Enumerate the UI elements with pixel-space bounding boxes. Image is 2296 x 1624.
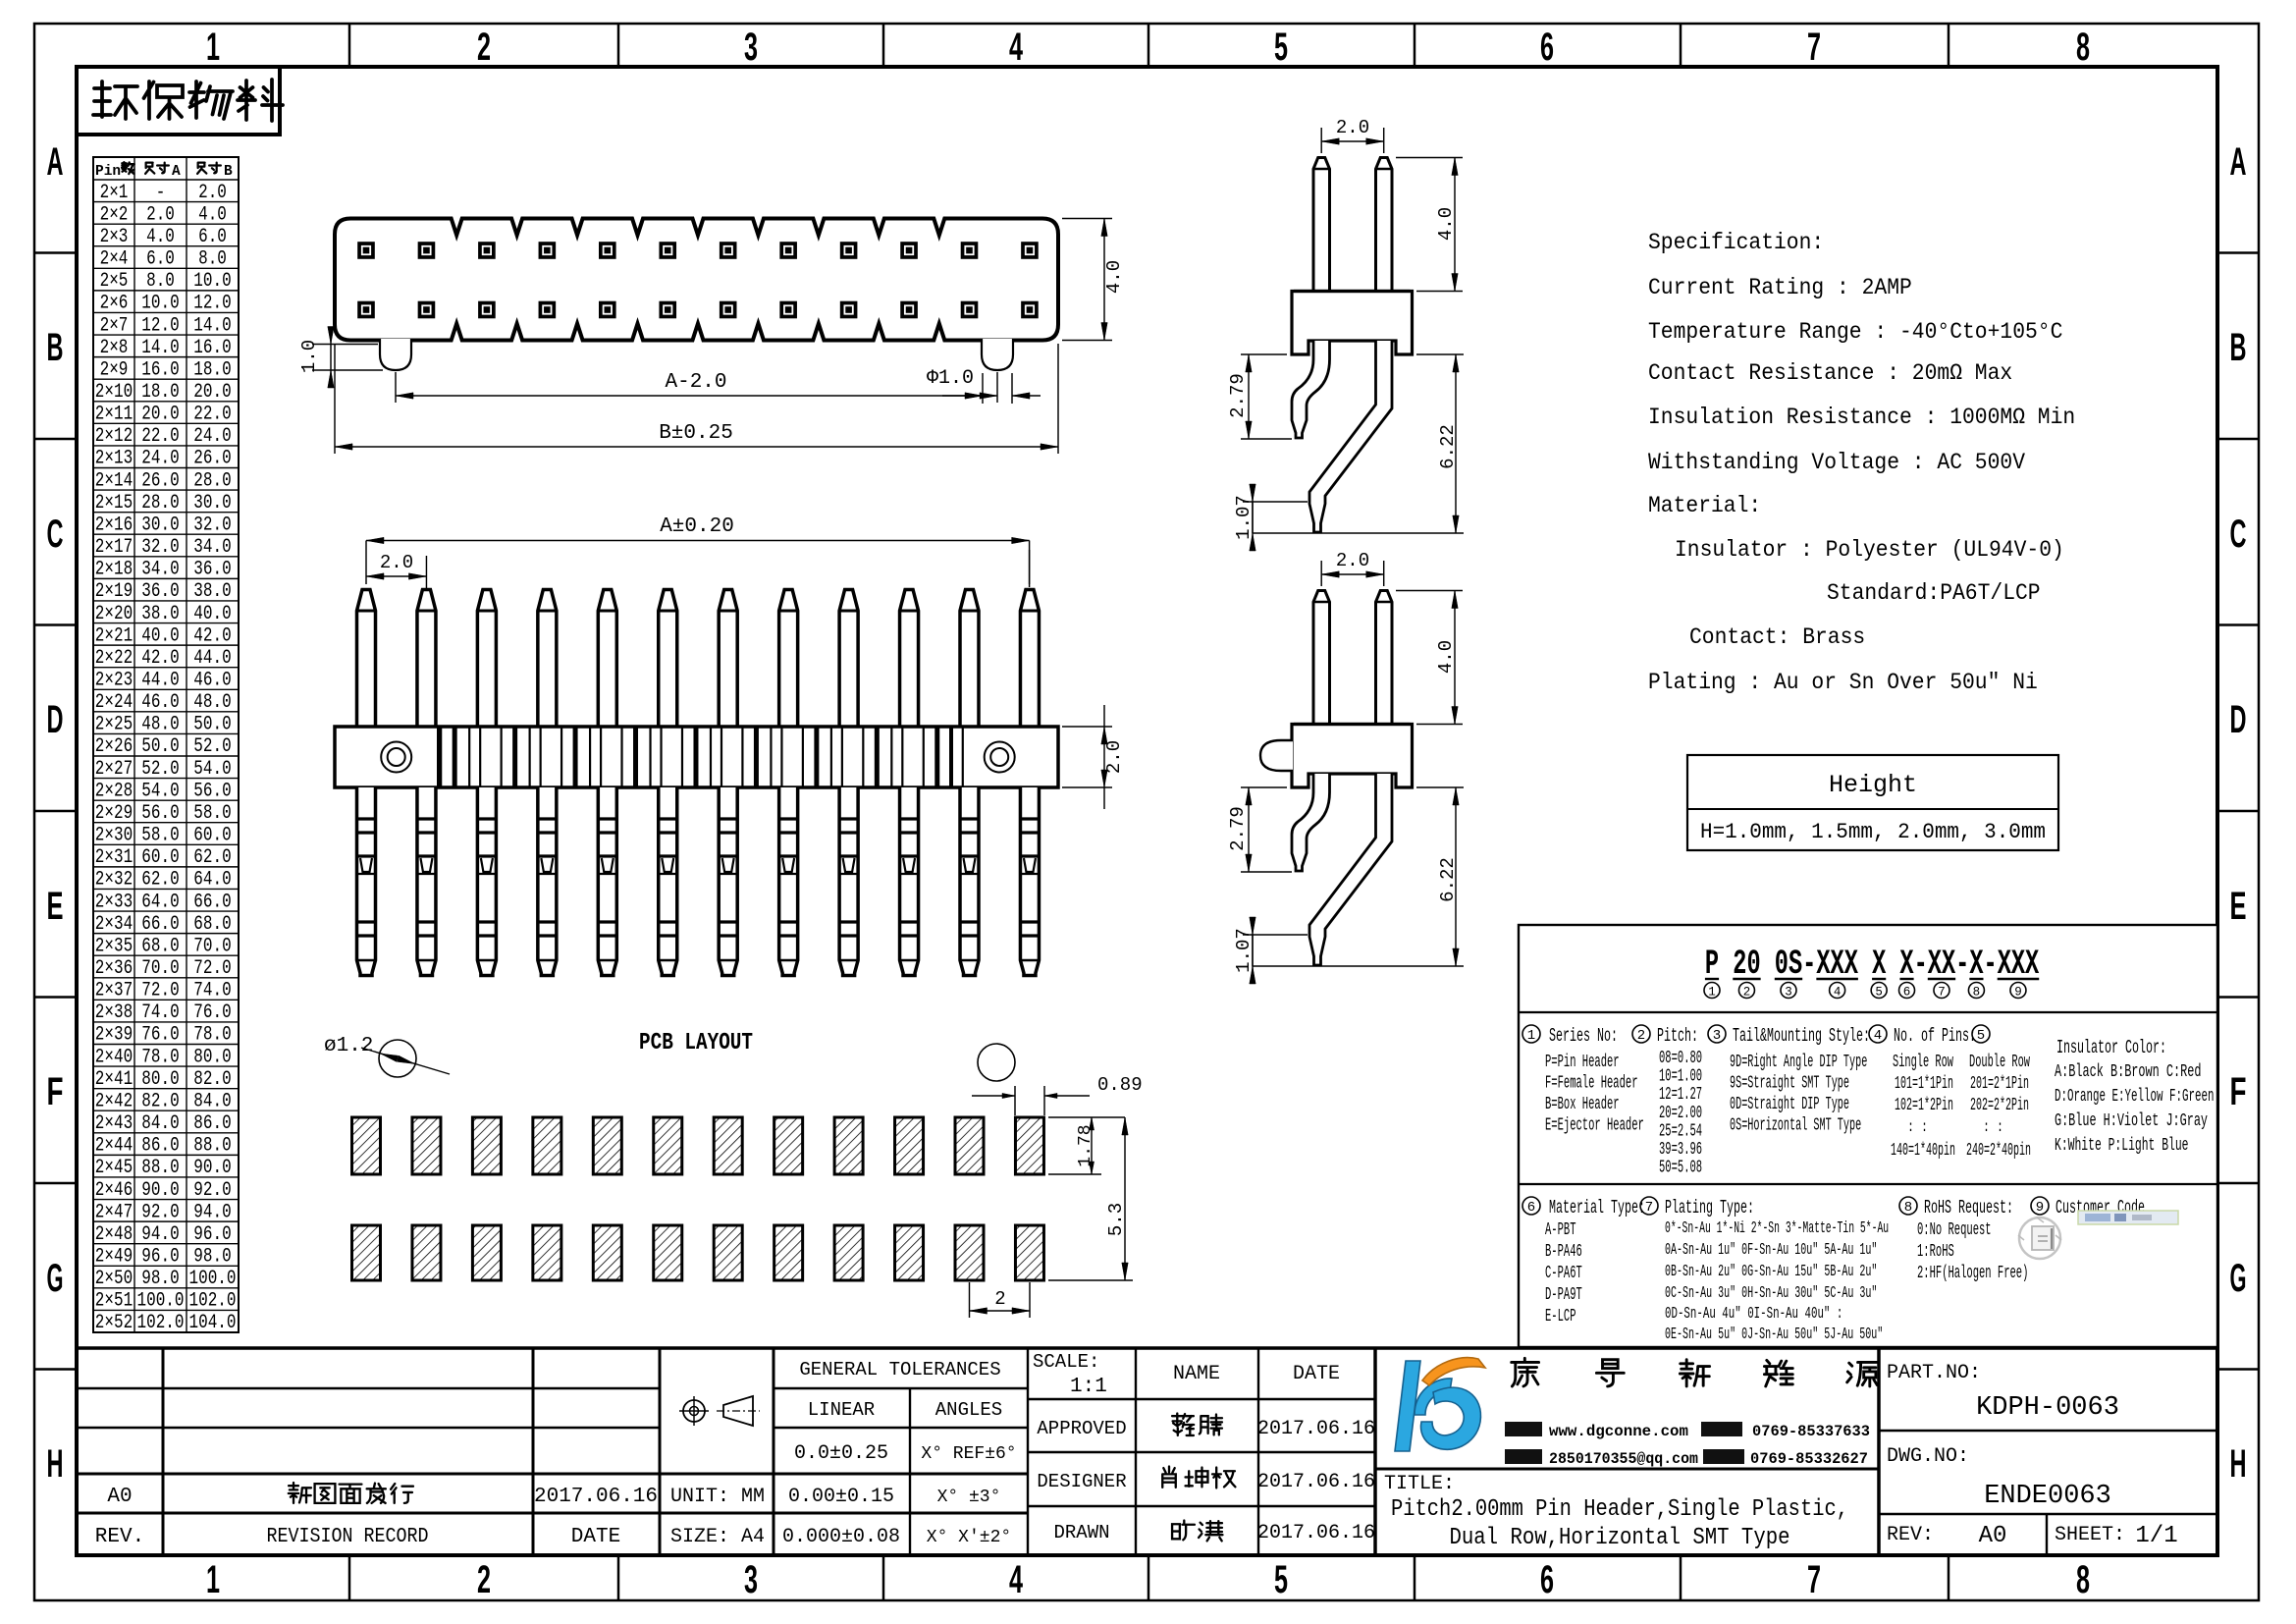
svg-text:140=1*40pin: 140=1*40pin xyxy=(1891,1141,1955,1161)
svg-text:1: 1 xyxy=(206,26,220,69)
svg-text:6.22: 6.22 xyxy=(1437,424,1459,469)
svg-text:ENDE0063: ENDE0063 xyxy=(1984,1482,2111,1511)
svg-text:APPROVED: APPROVED xyxy=(1037,1418,1126,1439)
svg-text:08=0.80: 08=0.80 xyxy=(1659,1049,1702,1068)
svg-text:82.0: 82.0 xyxy=(193,1068,231,1091)
svg-text:1:RoHS: 1:RoHS xyxy=(1917,1242,1954,1262)
svg-text:9S=Straight SMT Type: 9S=Straight SMT Type xyxy=(1730,1074,1849,1094)
svg-text:32.0: 32.0 xyxy=(141,536,179,559)
svg-text:Insulation Resistance : 1000MΩ: Insulation Resistance : 1000MΩ Min xyxy=(1648,405,2075,430)
svg-text:Plating : Au or Sn Over 50u″ N: Plating : Au or Sn Over 50u″ Ni xyxy=(1648,670,2038,695)
svg-text:2850170355@qq.com: 2850170355@qq.com xyxy=(1549,1450,1698,1468)
svg-text:26.0: 26.0 xyxy=(141,469,179,492)
svg-text:7: 7 xyxy=(1807,26,1821,69)
svg-text:20.0: 20.0 xyxy=(141,404,179,426)
svg-text:2×8: 2×8 xyxy=(100,337,129,359)
svg-text:7: 7 xyxy=(1807,1558,1821,1601)
svg-text:B±0.25: B±0.25 xyxy=(659,422,733,445)
svg-text:96.0: 96.0 xyxy=(141,1245,179,1268)
svg-text:-: - xyxy=(1802,945,1816,984)
svg-text:1.78: 1.78 xyxy=(1076,1124,1095,1166)
svg-text:2: 2 xyxy=(1637,1028,1645,1044)
svg-text:36.0: 36.0 xyxy=(193,559,231,581)
svg-text:6: 6 xyxy=(1903,986,1911,1000)
svg-text:202=2*2Pin: 202=2*2Pin xyxy=(1970,1096,2029,1115)
svg-text:40.0: 40.0 xyxy=(193,603,231,625)
svg-text:2.79: 2.79 xyxy=(1227,806,1249,851)
svg-text:30.0: 30.0 xyxy=(141,514,179,536)
svg-text:C: C xyxy=(47,513,64,556)
svg-text:2×38: 2×38 xyxy=(95,1001,133,1024)
svg-text:REV:: REV: xyxy=(1887,1524,1934,1546)
svg-text:4.0: 4.0 xyxy=(146,226,175,248)
svg-text:Insulator : Polyester (UL94V-0: Insulator : Polyester (UL94V-0) xyxy=(1675,537,2064,563)
svg-text:34.0: 34.0 xyxy=(193,536,231,559)
svg-text:74.0: 74.0 xyxy=(141,1001,179,1024)
svg-text:98.0: 98.0 xyxy=(141,1268,179,1290)
svg-text:44.0: 44.0 xyxy=(141,669,179,691)
svg-text:82.0: 82.0 xyxy=(141,1090,179,1112)
svg-text:22.0: 22.0 xyxy=(141,425,179,448)
svg-text:ø1.2: ø1.2 xyxy=(324,1035,373,1057)
svg-text:14.0: 14.0 xyxy=(193,314,231,337)
svg-text:Tail&Mounting Style:: Tail&Mounting Style: xyxy=(1733,1025,1870,1047)
svg-text:2×18: 2×18 xyxy=(95,559,133,581)
svg-text:2×44: 2×44 xyxy=(95,1135,133,1158)
svg-text:25=2.54: 25=2.54 xyxy=(1659,1121,1702,1141)
svg-text:0A-Sn-Au 1u″ 0F-Sn-Au 10u″ 5A: 0A-Sn-Au 1u″ 0F-Sn-Au 10u″ 5A-Au 1u″ xyxy=(1665,1241,1877,1260)
svg-text:2×36: 2×36 xyxy=(95,957,133,980)
svg-text:18.0: 18.0 xyxy=(193,358,231,381)
svg-text:44.0: 44.0 xyxy=(193,647,231,670)
svg-text:100.0: 100.0 xyxy=(137,1290,185,1313)
svg-text:2017.06.16: 2017.06.16 xyxy=(1257,1471,1375,1493)
svg-text:D: D xyxy=(2230,698,2247,741)
svg-text:70.0: 70.0 xyxy=(193,935,231,957)
svg-text:2×34: 2×34 xyxy=(95,913,133,936)
svg-text:C: C xyxy=(2230,513,2247,556)
svg-text:2×13: 2×13 xyxy=(95,448,133,470)
svg-text:0S=Horizontal SMT Type: 0S=Horizontal SMT Type xyxy=(1730,1116,1861,1136)
svg-text:14.0: 14.0 xyxy=(141,337,179,359)
svg-text:2×1: 2×1 xyxy=(100,182,129,204)
svg-text:76.0: 76.0 xyxy=(193,1001,231,1024)
svg-text:34.0: 34.0 xyxy=(141,559,179,581)
svg-text:Dual Row,Horizontal SMT Type: Dual Row,Horizontal SMT Type xyxy=(1450,1525,1790,1551)
svg-text:66.0: 66.0 xyxy=(141,913,179,936)
svg-text:Pitch2.00mm Pin Header,Single: Pitch2.00mm Pin Header,Single Plastic, xyxy=(1391,1496,1848,1523)
svg-text:X° ±3°: X° ±3° xyxy=(937,1488,1001,1507)
svg-text:50.0: 50.0 xyxy=(141,735,179,758)
svg-text:4: 4 xyxy=(1009,1558,1023,1601)
svg-text:2×27: 2×27 xyxy=(95,758,133,781)
svg-text:RoHS Request:: RoHS Request: xyxy=(1924,1197,2013,1218)
svg-text:Temperature Range : -40°Cto+10: Temperature Range : -40°Cto+105°C xyxy=(1648,319,2062,345)
svg-text:SIZE: A4: SIZE: A4 xyxy=(670,1526,765,1548)
svg-text:2×28: 2×28 xyxy=(95,780,133,802)
svg-text:76.0: 76.0 xyxy=(141,1024,179,1047)
svg-text:2: 2 xyxy=(994,1288,1005,1310)
svg-text:16.0: 16.0 xyxy=(193,337,231,359)
svg-text:Single Row: Single Row xyxy=(1893,1053,1953,1072)
svg-text:86.0: 86.0 xyxy=(141,1135,179,1158)
svg-text:4: 4 xyxy=(1874,1028,1882,1044)
svg-text:2×10: 2×10 xyxy=(95,381,133,404)
svg-text:2×37: 2×37 xyxy=(95,980,133,1002)
svg-text:2017.06.16: 2017.06.16 xyxy=(1257,1418,1375,1440)
svg-text:78.0: 78.0 xyxy=(193,1024,231,1047)
svg-text:DATE: DATE xyxy=(571,1526,620,1548)
svg-text:3: 3 xyxy=(744,1558,758,1601)
svg-text:90.0: 90.0 xyxy=(193,1157,231,1179)
svg-text:30.0: 30.0 xyxy=(193,492,231,514)
svg-text:A-2.0: A-2.0 xyxy=(665,371,726,394)
svg-text:2×22: 2×22 xyxy=(95,647,133,670)
svg-text:REVISION RECORD: REVISION RECORD xyxy=(267,1526,429,1548)
svg-text:2×45: 2×45 xyxy=(95,1157,133,1179)
svg-text:12.0: 12.0 xyxy=(141,314,179,337)
svg-text:1: 1 xyxy=(206,1558,220,1601)
svg-text:32.0: 32.0 xyxy=(193,514,231,536)
svg-text:E: E xyxy=(2230,885,2247,928)
svg-text:1: 1 xyxy=(1527,1028,1535,1044)
svg-text:: :: : : xyxy=(1983,1118,2003,1136)
svg-text:20=2.00: 20=2.00 xyxy=(1659,1104,1702,1123)
svg-text:D: D xyxy=(47,698,64,741)
svg-text:2×29: 2×29 xyxy=(95,802,133,825)
svg-text:www.dgconne.com: www.dgconne.com xyxy=(1549,1423,1688,1440)
svg-text:8: 8 xyxy=(1904,1200,1912,1216)
svg-text:2×49: 2×49 xyxy=(95,1245,133,1268)
svg-text:-: - xyxy=(1955,945,1969,984)
svg-text:0.89: 0.89 xyxy=(1097,1074,1143,1096)
svg-text:92.0: 92.0 xyxy=(193,1179,231,1202)
svg-text:48.0: 48.0 xyxy=(141,714,179,736)
svg-text:2:HF(Halogen Free): 2:HF(Halogen Free) xyxy=(1917,1264,2028,1283)
svg-text:80.0: 80.0 xyxy=(193,1046,231,1068)
svg-text:42.0: 42.0 xyxy=(141,647,179,670)
svg-text:Withstanding Voltage : AC 500V: Withstanding Voltage : AC 500V xyxy=(1648,450,2025,475)
svg-text:SCALE:: SCALE: xyxy=(1033,1351,1099,1373)
svg-text:2.0: 2.0 xyxy=(198,182,227,204)
svg-text:0.00±0.15: 0.00±0.15 xyxy=(788,1486,894,1508)
svg-text:Insulator Color:: Insulator Color: xyxy=(2056,1037,2166,1058)
svg-text:4.0: 4.0 xyxy=(1435,640,1457,674)
svg-text:72.0: 72.0 xyxy=(141,980,179,1002)
svg-text:28.0: 28.0 xyxy=(141,492,179,514)
svg-text:2×4: 2×4 xyxy=(100,248,129,271)
svg-text:78.0: 78.0 xyxy=(141,1046,179,1068)
svg-text:64.0: 64.0 xyxy=(193,869,231,892)
svg-text:2×7: 2×7 xyxy=(100,314,129,337)
svg-text:92.0: 92.0 xyxy=(141,1201,179,1223)
svg-text:2.0: 2.0 xyxy=(1336,117,1369,138)
svg-text:60.0: 60.0 xyxy=(193,825,231,847)
svg-text:ANGLES: ANGLES xyxy=(935,1399,1002,1421)
svg-text:6: 6 xyxy=(1540,26,1554,69)
svg-text:-: - xyxy=(156,182,166,204)
svg-text:3: 3 xyxy=(1713,1028,1721,1044)
svg-text:K:White P:Light Blue: K:White P:Light Blue xyxy=(2055,1136,2189,1156)
svg-text:2×3: 2×3 xyxy=(100,226,129,248)
svg-text:7: 7 xyxy=(1645,1200,1653,1216)
svg-text:Height: Height xyxy=(1829,771,1917,799)
svg-text:2×42: 2×42 xyxy=(95,1090,133,1112)
svg-text:SHEET:: SHEET: xyxy=(2055,1524,2125,1546)
svg-text:0.000±0.08: 0.000±0.08 xyxy=(782,1526,900,1548)
svg-text:-: - xyxy=(1984,945,1998,984)
svg-text:9: 9 xyxy=(2014,986,2022,1000)
svg-text:2.0: 2.0 xyxy=(380,552,413,573)
svg-text:2.0: 2.0 xyxy=(1336,550,1369,571)
svg-text:A0: A0 xyxy=(1979,1523,2007,1549)
svg-text:94.0: 94.0 xyxy=(141,1223,179,1246)
svg-text:2×12: 2×12 xyxy=(95,425,133,448)
svg-text:Material:: Material: xyxy=(1648,493,1761,518)
svg-text:2×15: 2×15 xyxy=(95,492,133,514)
svg-text:201=2*1Pin: 201=2*1Pin xyxy=(1970,1074,2029,1094)
svg-text:0D-Sn-Au 4u″ 0I-Sn-Au 40u″: 0D-Sn-Au 4u″ 0I-Sn-Au 40u″ : xyxy=(1665,1305,1842,1324)
svg-text:1.07: 1.07 xyxy=(1233,495,1255,540)
svg-text:Contact Resistance : 20mΩ Max: Contact Resistance : 20mΩ Max xyxy=(1648,360,2012,386)
svg-text:0D=Straight DIP Type: 0D=Straight DIP Type xyxy=(1730,1095,1849,1114)
svg-text:2×19: 2×19 xyxy=(95,580,133,603)
svg-text:0769-85337633: 0769-85337633 xyxy=(1752,1423,1870,1440)
svg-text:H: H xyxy=(2230,1442,2247,1486)
svg-text:2×26: 2×26 xyxy=(95,735,133,758)
svg-text:2: 2 xyxy=(477,26,491,69)
svg-text:F=Female Header: F=Female Header xyxy=(1545,1074,1638,1094)
svg-text:10=1.00: 10=1.00 xyxy=(1659,1067,1702,1087)
svg-text:DWG.NO:: DWG.NO: xyxy=(1887,1445,1969,1468)
svg-text:1: 1 xyxy=(1708,986,1716,1000)
svg-text:46.0: 46.0 xyxy=(141,691,179,714)
svg-text:Specification:: Specification: xyxy=(1648,230,1824,255)
svg-text:102=1*2Pin: 102=1*2Pin xyxy=(1895,1096,1953,1115)
svg-text:Current Rating : 2AMP: Current Rating : 2AMP xyxy=(1648,275,1912,300)
svg-text:Φ1.0: Φ1.0 xyxy=(927,367,974,390)
svg-text:2×46: 2×46 xyxy=(95,1179,133,1202)
svg-text:B=Box Header: B=Box Header xyxy=(1545,1095,1620,1114)
svg-text:4.0: 4.0 xyxy=(1103,260,1125,294)
svg-text:2×41: 2×41 xyxy=(95,1068,133,1091)
svg-text:90.0: 90.0 xyxy=(141,1179,179,1202)
svg-text:2×16: 2×16 xyxy=(95,514,133,536)
svg-text:6.22: 6.22 xyxy=(1437,857,1459,902)
svg-text:H: H xyxy=(47,1442,64,1486)
svg-text:104.0: 104.0 xyxy=(189,1312,237,1334)
svg-text:20.0: 20.0 xyxy=(193,381,231,404)
svg-text:GENERAL TOLERANCES: GENERAL TOLERANCES xyxy=(799,1359,1000,1380)
svg-text:2×48: 2×48 xyxy=(95,1223,133,1246)
svg-text:2×14: 2×14 xyxy=(95,469,133,492)
svg-text:Pitch:: Pitch: xyxy=(1657,1025,1698,1047)
svg-text:18.0: 18.0 xyxy=(141,381,179,404)
svg-text:2×11: 2×11 xyxy=(95,404,133,426)
svg-text:94.0: 94.0 xyxy=(193,1201,231,1223)
svg-text:50=5.08: 50=5.08 xyxy=(1659,1159,1702,1178)
svg-text:2×2: 2×2 xyxy=(100,203,129,226)
svg-text:2.0: 2.0 xyxy=(1103,740,1125,774)
svg-text:F: F xyxy=(2230,1070,2247,1113)
svg-text:24.0: 24.0 xyxy=(193,425,231,448)
svg-text:54.0: 54.0 xyxy=(193,758,231,781)
svg-text:12.0: 12.0 xyxy=(193,293,231,315)
svg-text:F: F xyxy=(47,1070,64,1113)
svg-text:84.0: 84.0 xyxy=(141,1112,179,1135)
svg-text:1.07: 1.07 xyxy=(1233,928,1255,973)
svg-text:9: 9 xyxy=(2036,1200,2044,1216)
svg-text:8: 8 xyxy=(1973,986,1981,1000)
svg-text:C-PA6T: C-PA6T xyxy=(1545,1264,1582,1283)
svg-text:3: 3 xyxy=(744,26,758,69)
svg-text:2×23: 2×23 xyxy=(95,669,133,691)
svg-text:96.0: 96.0 xyxy=(193,1223,231,1246)
svg-text:100.0: 100.0 xyxy=(189,1268,237,1290)
svg-text:2×39: 2×39 xyxy=(95,1024,133,1047)
svg-text:4: 4 xyxy=(1834,986,1842,1000)
svg-text:58.0: 58.0 xyxy=(193,802,231,825)
svg-text:A-PBT: A-PBT xyxy=(1545,1220,1576,1240)
svg-text:28.0: 28.0 xyxy=(193,469,231,492)
svg-text:38.0: 38.0 xyxy=(141,603,179,625)
svg-text:64.0: 64.0 xyxy=(141,891,179,913)
svg-text:88.0: 88.0 xyxy=(193,1135,231,1158)
svg-text:10.0: 10.0 xyxy=(141,293,179,315)
svg-text:46.0: 46.0 xyxy=(193,669,231,691)
svg-text:0769-85332627: 0769-85332627 xyxy=(1750,1450,1868,1468)
svg-text:39=3.96: 39=3.96 xyxy=(1659,1140,1702,1160)
svg-text:72.0: 72.0 xyxy=(193,957,231,980)
svg-text:REV.: REV. xyxy=(95,1526,144,1548)
svg-text:2×9: 2×9 xyxy=(100,358,129,381)
svg-text:3: 3 xyxy=(1785,986,1792,1000)
svg-text:A±0.20: A±0.20 xyxy=(660,515,734,538)
svg-text:2×52: 2×52 xyxy=(95,1312,133,1334)
svg-text:1:1: 1:1 xyxy=(1070,1376,1107,1398)
svg-text:6.0: 6.0 xyxy=(146,248,175,271)
svg-text:48.0: 48.0 xyxy=(193,691,231,714)
svg-text:74.0: 74.0 xyxy=(193,980,231,1002)
svg-text:0:No Request: 0:No Request xyxy=(1917,1220,1992,1240)
svg-text:66.0: 66.0 xyxy=(193,891,231,913)
svg-text:50.0: 50.0 xyxy=(193,714,231,736)
svg-text:D:Orange E:Yellow F:Green: D:Orange E:Yellow F:Green xyxy=(2055,1087,2215,1107)
svg-text:Series No:: Series No: xyxy=(1549,1025,1618,1047)
svg-text:5: 5 xyxy=(1977,1028,1985,1044)
svg-text:16.0: 16.0 xyxy=(141,358,179,381)
svg-text:TITLE:: TITLE: xyxy=(1384,1473,1455,1495)
svg-text:B: B xyxy=(224,164,233,180)
svg-text:2×17: 2×17 xyxy=(95,536,133,559)
svg-text:E=Ejector Header: E=Ejector Header xyxy=(1545,1116,1644,1136)
svg-text:84.0: 84.0 xyxy=(193,1090,231,1112)
svg-text:G:Blue H:Violet J:Gray: G:Blue H:Violet J:Gray xyxy=(2055,1111,2208,1131)
svg-text:8.0: 8.0 xyxy=(198,248,227,271)
svg-text:Pin: Pin xyxy=(95,164,121,180)
svg-text:10.0: 10.0 xyxy=(193,270,231,293)
svg-text:2: 2 xyxy=(1743,986,1751,1000)
svg-text:2.0: 2.0 xyxy=(146,203,175,226)
svg-text:0*-Sn-Au 1*-Ni 2*-Sn 3*-Matte-: 0*-Sn-Au 1*-Ni 2*-Sn 3*-Matte-Tin 5*-Au xyxy=(1665,1219,1889,1238)
svg-text:PCB LAYOUT: PCB LAYOUT xyxy=(639,1030,753,1056)
svg-text:6: 6 xyxy=(1540,1558,1554,1601)
svg-text:4: 4 xyxy=(1009,26,1023,69)
svg-text:Material Type:: Material Type: xyxy=(1549,1197,1645,1218)
svg-text:52.0: 52.0 xyxy=(141,758,179,781)
svg-text:54.0: 54.0 xyxy=(141,780,179,802)
svg-text:2.79: 2.79 xyxy=(1227,373,1249,418)
svg-text:DRAWN: DRAWN xyxy=(1053,1522,1109,1543)
svg-text:2×33: 2×33 xyxy=(95,891,133,913)
svg-text:2×50: 2×50 xyxy=(95,1268,133,1290)
svg-text:2×25: 2×25 xyxy=(95,714,133,736)
svg-text:2×24: 2×24 xyxy=(95,691,133,714)
svg-text:A: A xyxy=(47,140,64,184)
svg-text:A: A xyxy=(172,164,181,180)
svg-text:2×40: 2×40 xyxy=(95,1046,133,1068)
svg-text:PART.NO:: PART.NO: xyxy=(1887,1362,1981,1384)
svg-text:68.0: 68.0 xyxy=(193,913,231,936)
svg-text:88.0: 88.0 xyxy=(141,1157,179,1179)
svg-text:62.0: 62.0 xyxy=(141,869,179,892)
svg-text:2×51: 2×51 xyxy=(95,1290,133,1313)
svg-text:2×5: 2×5 xyxy=(100,270,129,293)
svg-text:X° X'±2°: X° X'±2° xyxy=(927,1528,1011,1547)
svg-text:G: G xyxy=(47,1257,64,1300)
svg-text:56.0: 56.0 xyxy=(193,780,231,802)
svg-text:A:Black B:Brown C:Red: A:Black B:Brown C:Red xyxy=(2055,1062,2202,1082)
svg-text:KDPH-0063: KDPH-0063 xyxy=(1976,1393,2119,1423)
svg-text:86.0: 86.0 xyxy=(193,1112,231,1135)
svg-text:Double Row: Double Row xyxy=(1969,1053,2030,1072)
svg-text:4.0: 4.0 xyxy=(198,203,227,226)
svg-text:5: 5 xyxy=(1274,1558,1288,1601)
svg-text:56.0: 56.0 xyxy=(141,802,179,825)
svg-text:98.0: 98.0 xyxy=(193,1245,231,1268)
svg-text:2×43: 2×43 xyxy=(95,1112,133,1135)
svg-text:H=1.0mm, 1.5mm, 2.0mm, 3.0mm: H=1.0mm, 1.5mm, 2.0mm, 3.0mm xyxy=(1700,820,2046,844)
svg-text:22.0: 22.0 xyxy=(193,404,231,426)
svg-text:2×20: 2×20 xyxy=(95,603,133,625)
svg-text:0B-Sn-Au 2u″ 0G-Sn-Au 15u″ 5B: 0B-Sn-Au 2u″ 0G-Sn-Au 15u″ 5B-Au 2u″ xyxy=(1665,1263,1877,1281)
svg-text:0E-Sn-Au 5u″ 0J-Sn-Au 50u″ 5J: 0E-Sn-Au 5u″ 0J-Sn-Au 50u″ 5J-Au 50u″ xyxy=(1665,1326,1883,1344)
svg-text:5: 5 xyxy=(1274,26,1288,69)
svg-text:P=Pin Header: P=Pin Header xyxy=(1545,1053,1620,1072)
svg-text:-: - xyxy=(1914,945,1928,984)
svg-text:102.0: 102.0 xyxy=(189,1290,237,1313)
svg-text:6.0: 6.0 xyxy=(198,226,227,248)
svg-text:36.0: 36.0 xyxy=(141,580,179,603)
svg-text:DESIGNER: DESIGNER xyxy=(1037,1471,1126,1492)
svg-text:B: B xyxy=(2230,326,2247,369)
svg-text:E: E xyxy=(47,885,64,928)
svg-text:2×47: 2×47 xyxy=(95,1201,133,1223)
svg-text:X° REF±6°: X° REF±6° xyxy=(921,1444,1016,1464)
svg-text:B: B xyxy=(47,326,64,369)
svg-text:8.0: 8.0 xyxy=(146,270,175,293)
svg-text:Plating Type:: Plating Type: xyxy=(1665,1197,1754,1218)
svg-text:40.0: 40.0 xyxy=(141,624,179,647)
svg-text:102.0: 102.0 xyxy=(137,1312,185,1334)
svg-text:68.0: 68.0 xyxy=(141,935,179,957)
svg-text:80.0: 80.0 xyxy=(141,1068,179,1091)
svg-text:DATE: DATE xyxy=(1293,1363,1340,1385)
svg-text:101=1*1Pin: 101=1*1Pin xyxy=(1895,1074,1953,1094)
svg-text:2017.06.16: 2017.06.16 xyxy=(1257,1522,1375,1544)
svg-text:60.0: 60.0 xyxy=(141,846,179,869)
svg-text:2×21: 2×21 xyxy=(95,624,133,647)
